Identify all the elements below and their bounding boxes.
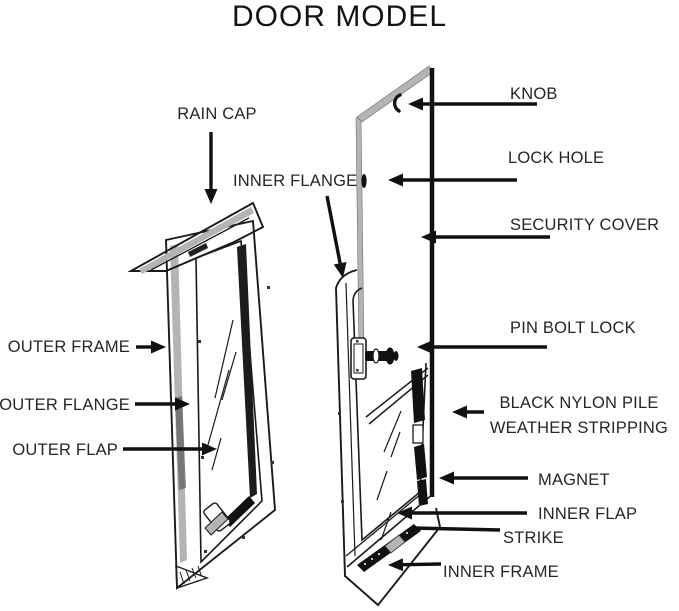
inner-frame-label: INNER FRAME: [443, 563, 559, 581]
inner-flange-label: INNER FLANGE: [233, 172, 357, 190]
weather-stripping-arrowhead: [452, 406, 467, 419]
magnet-label: MAGNET: [538, 471, 610, 489]
inner-flap-label: INNER FLAP: [538, 505, 637, 523]
lock-hole-slot: [361, 174, 366, 188]
strike-arrow: [413, 528, 500, 530]
outer-door-assembly: [131, 203, 275, 588]
door-model-diagram: DOOR MODEL: [0, 0, 679, 611]
outer-flange-label: OUTER FLANGE: [0, 396, 130, 414]
labels-layer: RAIN CAPINNER FLANGEKNOBLOCK HOLESECURIT…: [0, 85, 668, 581]
outer-flap-edge: [237, 244, 257, 498]
outer-frame-label: OUTER FRAME: [8, 338, 130, 356]
inner-door-assembly: [336, 66, 440, 605]
inner-flange-arrow: [327, 196, 340, 263]
outer-flap-arrowhead: [202, 443, 217, 456]
strike-label: STRIKE: [503, 529, 564, 547]
magnet-housing: [413, 425, 423, 443]
rain-cap-arrowhead: [205, 189, 218, 204]
pin-bolt-lock-label: PIN BOLT LOCK: [510, 319, 636, 337]
outer-frame-arrowhead: [151, 341, 166, 354]
magnet-arrowhead: [439, 472, 454, 485]
inner-frame-arrowhead: [388, 558, 403, 571]
exploded-door-diagram: RAIN CAPINNER FLANGEKNOBLOCK HOLESECURIT…: [0, 0, 679, 611]
security-cover-label: SECURITY COVER: [510, 216, 659, 234]
inner-frame-arrow: [403, 564, 441, 565]
rain-cap-label: RAIN CAP: [177, 105, 257, 123]
knob-label: KNOB: [510, 85, 558, 103]
weather-stripping-label: BLACK NYLON PILEWEATHER STRIPPING: [490, 394, 668, 437]
lock-hole-label: LOCK HOLE: [508, 149, 604, 167]
outer-flap-label: OUTER FLAP: [12, 441, 118, 459]
